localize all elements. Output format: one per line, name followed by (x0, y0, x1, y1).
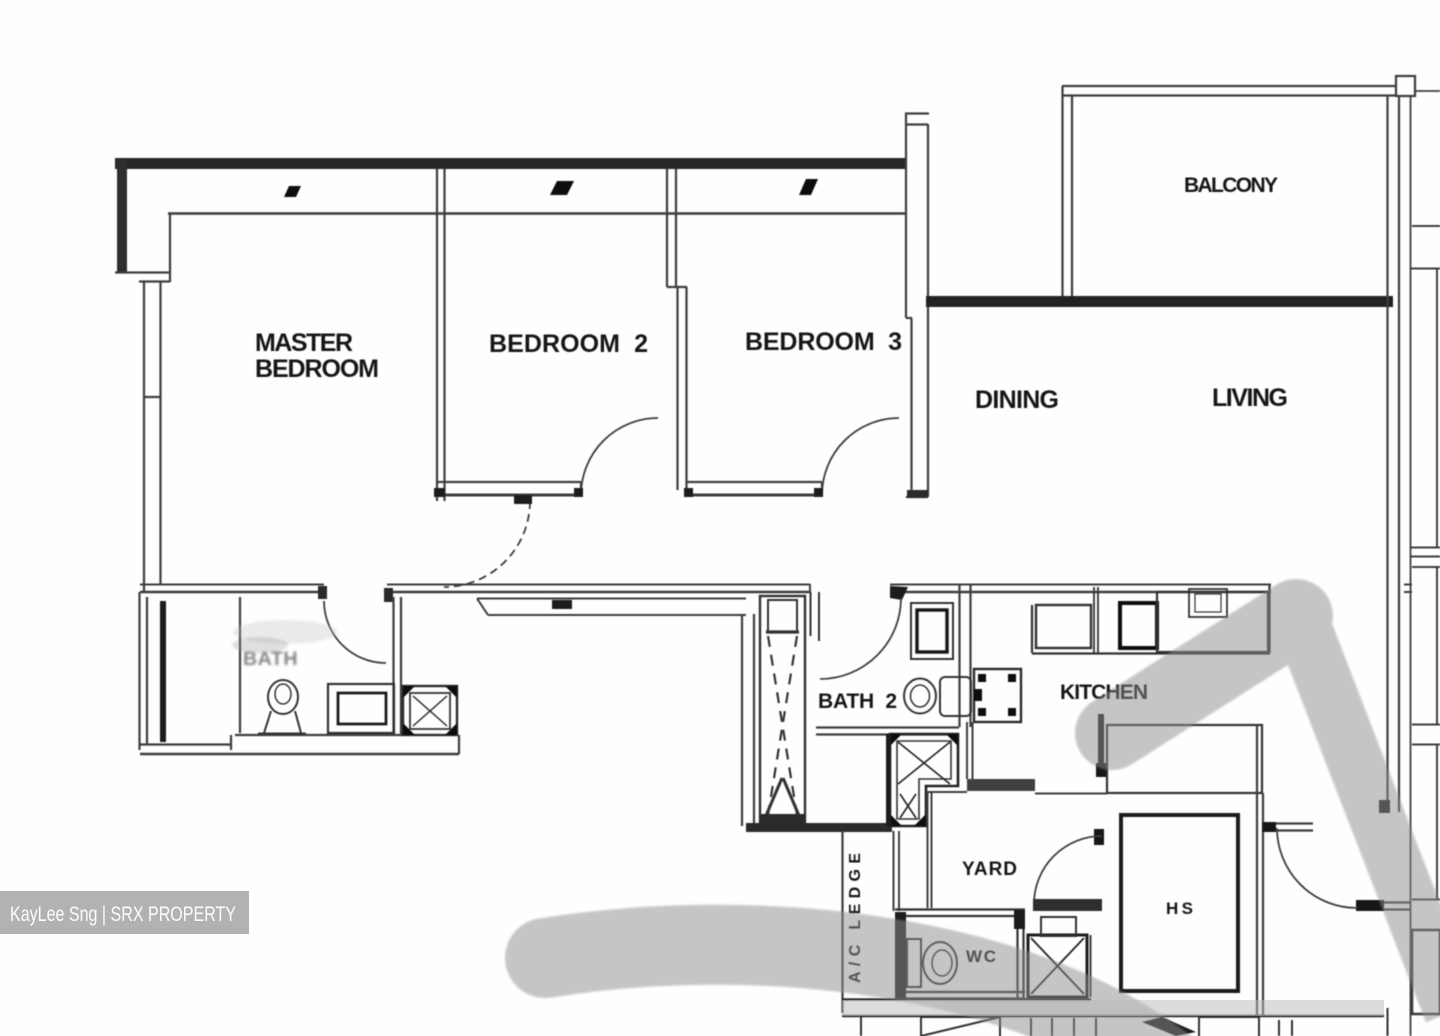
svg-text:BATH 2: BATH 2 (818, 690, 897, 713)
svg-text:LIVING: LIVING (1212, 384, 1288, 412)
svg-text:BEDROOM 2: BEDROOM 2 (489, 330, 648, 358)
svg-text:YARD: YARD (962, 859, 1017, 880)
svg-text:DINING: DINING (975, 386, 1059, 414)
svg-text:BEDROOM: BEDROOM (255, 355, 379, 383)
svg-text:MASTER: MASTER (255, 329, 353, 357)
svg-text:KayLee Sng | SRX PROPERTY: KayLee Sng | SRX PROPERTY (10, 903, 236, 926)
svg-text:BEDROOM 3: BEDROOM 3 (745, 328, 902, 356)
svg-text:BALCONY: BALCONY (1184, 174, 1278, 197)
